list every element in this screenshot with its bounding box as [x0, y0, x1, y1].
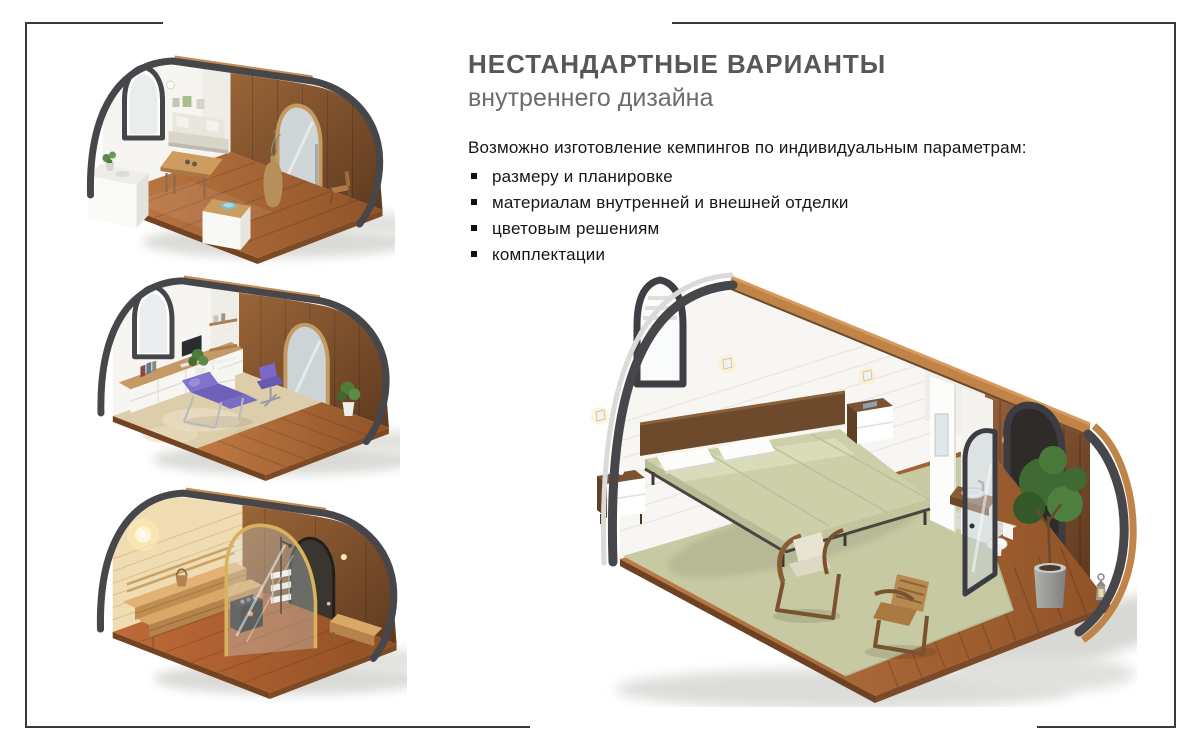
pod-render-sauna — [82, 484, 407, 702]
bullet-item-text: материалам внутренней и внешней отделки — [492, 193, 849, 212]
pod-render-bedroom — [545, 264, 1137, 707]
page-title: НЕСТАНДАРТНЫЕ ВАРИАНТЫ — [468, 50, 1048, 79]
bullet-item: комплектации — [468, 245, 1048, 265]
page-border-top-right-segment — [672, 22, 1176, 24]
bullet-item: размеру и планировке — [468, 167, 1048, 187]
bullet-item: материалам внутренней и внешней отделки — [468, 193, 1048, 213]
bullet-item: цветовым решениям — [468, 219, 1048, 239]
pod-massage-illustration — [82, 272, 400, 484]
bullet-square-icon — [471, 251, 477, 257]
bullet-item-text: комплектации — [492, 245, 605, 264]
page-border-top-left-segment — [25, 22, 163, 24]
bullet-item-text: размеру и планировке — [492, 167, 673, 186]
bullet-item-text: цветовым решениям — [492, 219, 659, 238]
pod-sauna-illustration — [82, 484, 407, 702]
pod-render-massage — [82, 272, 400, 484]
page-subtitle: внутреннего дизайна — [468, 84, 1048, 113]
page-border-bottom-right-segment — [1037, 726, 1176, 728]
pod-bedroom-illustration — [545, 264, 1137, 707]
bullet-list: размеру и планировке материалам внутренн… — [468, 167, 1048, 265]
text-column: НЕСТАНДАРТНЫЕ ВАРИАНТЫ внутреннего дизай… — [468, 50, 1048, 271]
pod-lounge-illustration — [70, 52, 395, 267]
bullet-square-icon — [471, 225, 477, 231]
bullet-square-icon — [471, 199, 477, 205]
page-border-left — [25, 22, 27, 728]
page-border-bottom-left-segment — [25, 726, 530, 728]
intro-text: Возможно изготовление кемпингов по индив… — [468, 138, 1048, 158]
bullet-square-icon — [471, 173, 477, 179]
page-border-right — [1174, 22, 1176, 728]
pod-render-lounge — [70, 52, 395, 267]
